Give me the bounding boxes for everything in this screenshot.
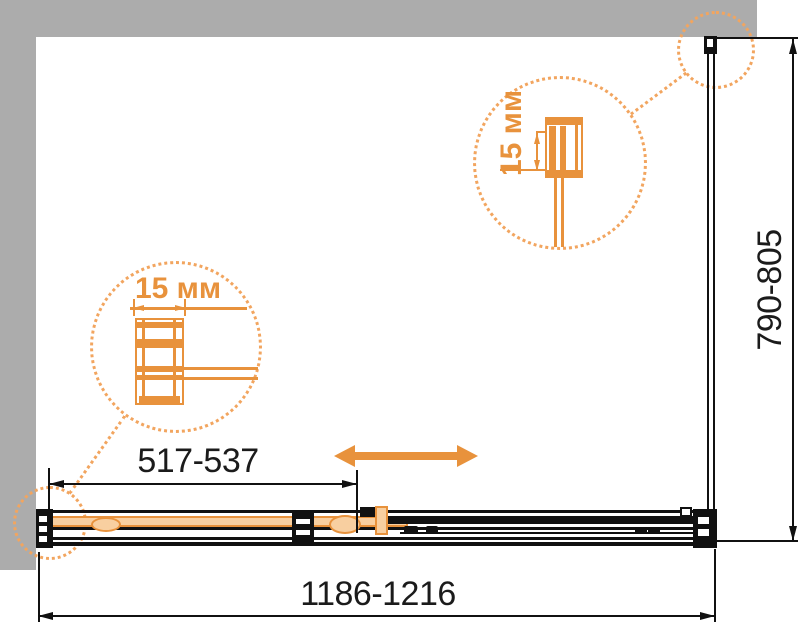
opening-dim-line	[49, 483, 357, 485]
rail-line-3	[400, 532, 716, 534]
corner-profile-slot-1	[698, 517, 709, 524]
side-panel-glass-line-inner	[713, 53, 715, 512]
detail-left-label: 15 мм	[118, 272, 238, 306]
opening-dimension-label: 517-537	[78, 442, 318, 481]
fixing-bracket-right	[680, 507, 692, 517]
detail-left-glass-line-top	[184, 367, 258, 370]
detail-left-glass-line-bottom	[184, 377, 258, 380]
width-dim-arrow-left-icon	[38, 612, 53, 620]
width-dim-arrow-right-icon	[700, 612, 715, 620]
detail-left-profile-rung-4	[137, 375, 182, 380]
fixed-glass-panel	[388, 516, 695, 524]
detail-left-profile-rung-3	[137, 366, 182, 372]
detail-top-profile-web-3	[575, 119, 578, 176]
detail-top-glass-line-right	[561, 178, 564, 247]
guide-block-4	[648, 527, 660, 534]
wall-profile-left-slot-3	[39, 536, 47, 542]
depth-dim-ext-top	[716, 37, 798, 39]
wall-top	[0, 0, 757, 37]
depth-dim-arrow-top-icon	[789, 39, 797, 54]
opening-dim-arrow-right-icon	[342, 480, 357, 488]
callout-connector-right	[630, 72, 687, 116]
roller-carriage-block	[292, 513, 314, 544]
roller-wheel-left-icon	[91, 517, 121, 532]
depth-dim-line	[792, 39, 794, 541]
slide-direction-arrowhead-right-icon	[457, 445, 478, 467]
rail-line-4	[38, 537, 716, 540]
detail-left-profile-web-2	[173, 320, 176, 403]
detail-left-profile-rung-2	[137, 339, 182, 348]
detail-top-profile-web-1	[549, 126, 556, 170]
detail-left-tick-b	[184, 299, 186, 316]
roller-carriage-slot-1	[296, 519, 310, 524]
detail-left-profile-web-1	[142, 320, 145, 403]
guide-block-1	[404, 526, 418, 534]
wall-left	[0, 0, 36, 570]
slide-direction-arrowhead-left-icon	[334, 445, 355, 467]
opening-dim-ext-left	[48, 468, 50, 520]
corner-profile-slot-2	[698, 529, 709, 536]
guide-block-2	[426, 526, 438, 534]
depth-dim-arrow-bottom-icon	[789, 526, 797, 541]
detail-left-profile-rung-1	[137, 322, 182, 328]
door-bracket	[375, 506, 388, 535]
detail-left-dim-line	[130, 307, 247, 310]
detail-left-tick-a	[133, 299, 135, 316]
wall-profile-left-slot-2	[39, 526, 47, 532]
detail-top-profile-web-2	[560, 126, 566, 170]
guide-block-3	[635, 527, 647, 534]
side-panel-glass-line-outer	[707, 53, 709, 512]
opening-dim-arrow-left-icon	[49, 480, 64, 488]
roller-carriage-slot-2	[296, 530, 310, 535]
depth-dimension-label: 790-805	[751, 172, 791, 408]
detail-left-profile-rung-5	[139, 396, 180, 403]
detail-top-label: 15 мм	[495, 73, 535, 193]
detail-top-arrow-up-icon	[534, 133, 540, 144]
detail-top-glass-line-left	[554, 178, 557, 247]
rail-bottom-line	[38, 542, 716, 546]
wall-profile-left-slot-1	[39, 516, 47, 522]
diagram-canvas: 1186-1216 790-805 517-537 15 мм 15 мм	[0, 0, 800, 623]
width-dimension-label: 1186-1216	[258, 575, 498, 614]
width-dim-line	[38, 615, 715, 617]
wall-profile-top-right-slot	[707, 39, 713, 47]
depth-dim-ext-bottom	[717, 540, 798, 542]
slide-direction-arrow	[353, 452, 458, 460]
